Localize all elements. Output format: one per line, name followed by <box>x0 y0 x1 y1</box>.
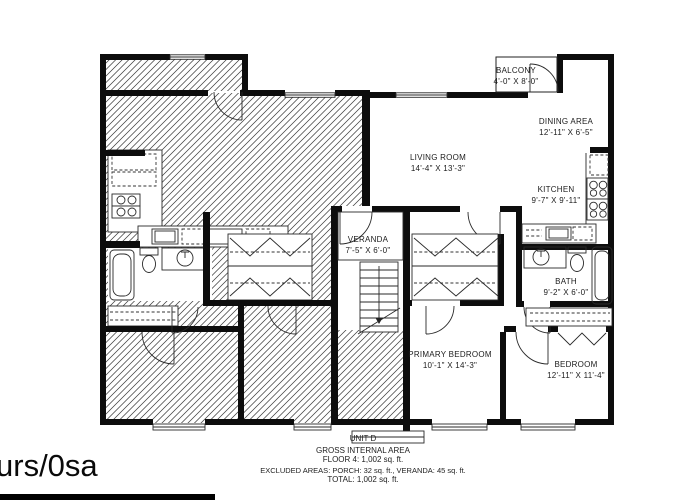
window-bottom-primary <box>432 424 487 430</box>
stove-icon <box>587 178 608 220</box>
bath-dims: 9'-2" X 6'-0" <box>544 288 589 297</box>
window-bottom-l1 <box>153 424 205 430</box>
door-bedroom <box>516 332 548 364</box>
dining-label: DINING AREA <box>539 117 594 126</box>
footer-gross-area: GROSS INTERNAL AREA <box>316 446 411 455</box>
living-dims: 14'-4" X 13'-3" <box>411 164 465 173</box>
bedroom-label: BEDROOM <box>554 360 597 369</box>
veranda-dims: 7'-5" X 6'-0" <box>346 246 391 255</box>
floor-plan-page: BALCONY 4'-0" X 8'-0" DINING AREA 12'-11… <box>0 0 700 500</box>
bedroom-dims: 12'-11" X 11'-4" <box>547 371 605 380</box>
footer-total-area: TOTAL: 1,002 sq. ft. <box>327 475 398 484</box>
kitchen-dims: 9'-7" X 9'-11" <box>532 196 581 205</box>
window-left-top <box>285 93 335 98</box>
stairs <box>358 262 400 334</box>
hall-closets <box>412 234 498 300</box>
bathtub-icon <box>592 247 612 304</box>
primary-bedroom-label: PRIMARY BEDROOM <box>408 350 492 359</box>
footer-unit-label: UNIT D <box>350 434 377 443</box>
watermark-text: urs/0sa <box>0 448 98 483</box>
vanity-sink-icon <box>524 247 566 268</box>
bottom-bar <box>0 494 215 500</box>
balcony-dims: 4'-0" X 8'-0" <box>494 77 539 86</box>
footer-floor-area: FLOOR 4: 1,002 sq. ft. <box>323 455 403 464</box>
kitchen-fixtures <box>522 147 608 243</box>
primary-bedroom-dims: 10'-1" X 14'-3" <box>423 361 477 370</box>
footer: UNIT D GROSS INTERNAL AREA FLOOR 4: 1,00… <box>260 434 466 484</box>
toilet-icon <box>568 247 586 272</box>
bath-label: BATH <box>555 277 577 286</box>
kitchen-label: KITCHEN <box>538 185 575 194</box>
balcony-label: BALCONY <box>496 66 536 75</box>
window-bottom-l2 <box>294 424 331 430</box>
bedroom-closet <box>526 308 612 345</box>
window-bottom-bedroom <box>521 424 575 430</box>
floor-plan-svg: BALCONY 4'-0" X 8'-0" DINING AREA 12'-11… <box>0 0 700 500</box>
footer-excluded-areas: EXCLUDED AREAS: PORCH: 32 sq. ft., VERAN… <box>260 466 466 475</box>
dining-dims: 12'-11" X 6'-5" <box>539 128 593 137</box>
living-label: LIVING ROOM <box>410 153 466 162</box>
veranda-label: VERANDA <box>348 235 389 244</box>
neighbor-closets <box>228 234 312 300</box>
window-living <box>396 93 447 98</box>
door-primary-bedroom <box>426 306 454 334</box>
window-porch <box>170 55 205 60</box>
stove-icon-left <box>112 194 140 218</box>
